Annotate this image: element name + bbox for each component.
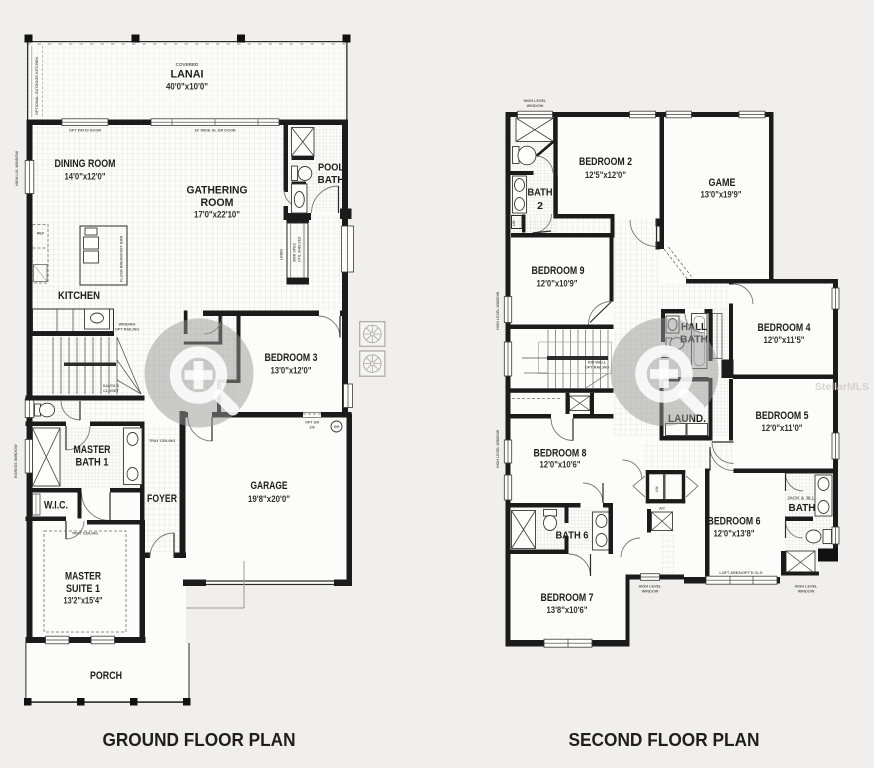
svg-text:OPT DR: OPT DR — [305, 421, 320, 425]
svg-text:2: 2 — [537, 200, 543, 212]
svg-text:BEDROOM 6: BEDROOM 6 — [708, 516, 761, 528]
svg-text:BEDROOM 7: BEDROOM 7 — [541, 592, 594, 604]
svg-text:KID WALL: KID WALL — [588, 361, 607, 365]
svg-text:GROUND FLOOR PLAN: GROUND FLOOR PLAN — [103, 729, 296, 750]
svg-text:2/8: 2/8 — [309, 426, 314, 430]
svg-text:COVERED: COVERED — [176, 62, 199, 67]
svg-text:BEDROOM 8: BEDROOM 8 — [534, 448, 587, 460]
svg-text:12'0"x11'0": 12'0"x11'0" — [762, 423, 803, 434]
svg-text:UTIL SHELVES: UTIL SHELVES — [298, 236, 302, 262]
svg-text:CLOSET: CLOSET — [103, 389, 119, 393]
svg-text:LINEN: LINEN — [280, 249, 284, 260]
svg-text:16' WIDE GL DR DOOR: 16' WIDE GL DR DOOR — [194, 129, 236, 133]
svg-text:BATH: BATH — [789, 502, 816, 514]
svg-text:LIN: LIN — [655, 486, 659, 492]
svg-text:12'5"x12'0": 12'5"x12'0" — [585, 170, 626, 181]
svg-text:BEDROOM 3: BEDROOM 3 — [265, 352, 318, 364]
svg-text:POOL: POOL — [318, 163, 344, 174]
svg-text:13'0"x12'0": 13'0"x12'0" — [271, 366, 312, 377]
svg-text:WINDOW: WINDOW — [798, 590, 815, 594]
svg-text:12'0"x10'9": 12'0"x10'9" — [537, 279, 578, 290]
svg-text:12'0"x10'6": 12'0"x10'6" — [540, 460, 581, 471]
svg-text:12'0"x13'8": 12'0"x13'8" — [714, 529, 755, 540]
svg-text:BATH 1: BATH 1 — [76, 457, 109, 469]
svg-text:17'0"x22'10": 17'0"x22'10" — [194, 210, 240, 221]
svg-text:WINDING: WINDING — [119, 323, 136, 327]
svg-text:TRAY CEILING: TRAY CEILING — [72, 532, 98, 536]
svg-text:FLUSH BREAKFAST BAR: FLUSH BREAKFAST BAR — [120, 236, 124, 282]
svg-text:OPTIONAL OUTDOOR KITCHEN: OPTIONAL OUTDOOR KITCHEN — [35, 57, 39, 115]
svg-text:14'0"x12'0": 14'0"x12'0" — [65, 172, 106, 183]
svg-text:GATHERING: GATHERING — [187, 185, 248, 197]
svg-text:BEDROOM 4: BEDROOM 4 — [758, 322, 812, 334]
svg-text:SUITE 1: SUITE 1 — [66, 583, 100, 595]
svg-text:KITCHEN: KITCHEN — [58, 290, 100, 302]
svg-text:SECOND FLOOR PLAN: SECOND FLOOR PLAN — [569, 729, 760, 750]
svg-text:BEDROOM 5: BEDROOM 5 — [756, 410, 809, 422]
svg-text:A/C: A/C — [659, 507, 665, 511]
svg-text:OPT PATIO DOOR: OPT PATIO DOOR — [69, 129, 102, 133]
svg-text:HIGH LVL WINDOW: HIGH LVL WINDOW — [15, 151, 19, 186]
svg-text:BATH: BATH — [318, 175, 345, 186]
svg-text:WH: WH — [334, 425, 340, 429]
svg-text:GAME: GAME — [709, 177, 736, 189]
svg-text:HIGH LEVEL WINDOW: HIGH LEVEL WINDOW — [496, 429, 500, 468]
svg-text:BATH: BATH — [528, 187, 553, 199]
svg-text:LOFT AREA/OPT'D CLG: LOFT AREA/OPT'D CLG — [719, 571, 762, 575]
svg-text:WINDOW: WINDOW — [527, 104, 544, 108]
svg-text:19'8"x20'0": 19'8"x20'0" — [248, 494, 290, 505]
svg-text:HIGH LEVEL: HIGH LEVEL — [795, 585, 818, 589]
svg-text:HIGH LEVEL WINDOW: HIGH LEVEL WINDOW — [496, 291, 500, 330]
svg-text:BEDROOM 2: BEDROOM 2 — [579, 156, 632, 168]
svg-text:13'0"x19'9": 13'0"x19'9" — [701, 190, 742, 201]
svg-text:SANTA'S: SANTA'S — [103, 384, 120, 388]
svg-text:PORCH: PORCH — [90, 670, 122, 682]
svg-text:HIGH LEVEL: HIGH LEVEL — [524, 99, 547, 103]
svg-text:TRAY CEILING: TRAY CEILING — [149, 439, 175, 443]
svg-text:REF: REF — [37, 232, 45, 236]
svg-text:GARAGE: GARAGE — [251, 480, 288, 492]
svg-text:HIGH LEVEL: HIGH LEVEL — [639, 585, 662, 589]
svg-text:LIN: LIN — [512, 220, 516, 226]
svg-text:40'0"x10'0": 40'0"x10'0" — [166, 82, 208, 93]
svg-text:SWR SPEC: SWR SPEC — [293, 242, 297, 262]
svg-text:OPT RAILING: OPT RAILING — [585, 366, 610, 370]
svg-text:ROOM: ROOM — [201, 197, 234, 209]
svg-text:FOYER: FOYER — [147, 493, 177, 505]
svg-text:JACK & JILL: JACK & JILL — [787, 496, 815, 501]
svg-text:StellarMLS: StellarMLS — [815, 381, 869, 393]
svg-text:WINDOW: WINDOW — [642, 590, 659, 594]
svg-text:W.I.C.: W.I.C. — [44, 500, 68, 512]
svg-text:OPT RAILING: OPT RAILING — [115, 328, 140, 332]
svg-text:MASTER: MASTER — [74, 444, 111, 456]
svg-text:BATH 6: BATH 6 — [556, 530, 589, 542]
svg-text:13'2"x15'4": 13'2"x15'4" — [64, 596, 103, 607]
svg-text:13'8"x10'6": 13'8"x10'6" — [547, 605, 588, 616]
svg-text:LANAI: LANAI — [171, 69, 204, 81]
svg-text:EGRESS WINDOW: EGRESS WINDOW — [14, 444, 18, 478]
svg-text:12'0"x11'5": 12'0"x11'5" — [764, 335, 805, 346]
svg-text:MASTER: MASTER — [65, 571, 101, 583]
svg-text:BEDROOM 9: BEDROOM 9 — [532, 265, 585, 277]
svg-text:DINING ROOM: DINING ROOM — [55, 158, 116, 170]
